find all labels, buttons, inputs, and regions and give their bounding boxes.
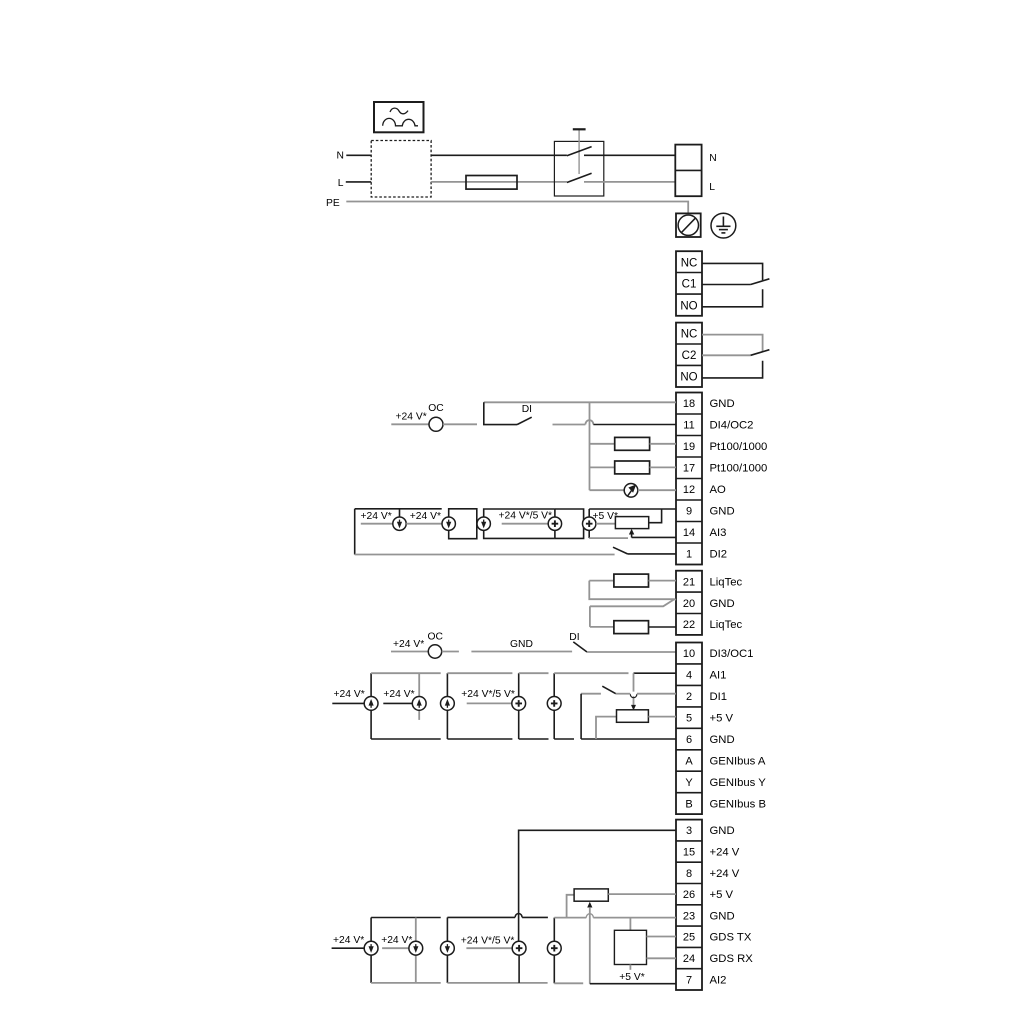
svg-text:+24 V*/5 V*: +24 V*/5 V* bbox=[499, 511, 553, 522]
svg-text:AO: AO bbox=[710, 484, 727, 496]
svg-text:+24 V*: +24 V* bbox=[333, 935, 364, 946]
svg-text:NO: NO bbox=[680, 372, 697, 384]
svg-text:Pt100/1000: Pt100/1000 bbox=[710, 441, 768, 453]
svg-text:GND: GND bbox=[710, 910, 735, 922]
svg-text:+24 V*: +24 V* bbox=[361, 511, 392, 522]
svg-text:+24 V: +24 V bbox=[710, 847, 740, 859]
svg-text:DI2: DI2 bbox=[710, 549, 728, 561]
svg-text:14: 14 bbox=[683, 527, 695, 539]
svg-text:15: 15 bbox=[683, 847, 695, 859]
svg-text:Pt100/1000: Pt100/1000 bbox=[710, 463, 768, 475]
svg-text:8: 8 bbox=[686, 868, 692, 880]
svg-text:L: L bbox=[709, 182, 715, 193]
svg-text:+24 V*/5 V*: +24 V*/5 V* bbox=[461, 936, 515, 947]
svg-text:+24 V*: +24 V* bbox=[393, 639, 424, 650]
svg-text:DI1: DI1 bbox=[710, 691, 728, 703]
svg-text:+24 V*: +24 V* bbox=[381, 935, 412, 946]
svg-text:+5 V: +5 V bbox=[710, 713, 734, 725]
svg-text:NC: NC bbox=[681, 257, 698, 269]
svg-text:9: 9 bbox=[686, 506, 692, 518]
svg-text:+24 V*: +24 V* bbox=[396, 411, 427, 422]
svg-text:OC: OC bbox=[428, 631, 444, 642]
svg-text:GND: GND bbox=[710, 398, 735, 410]
svg-text:DI3/OC1: DI3/OC1 bbox=[710, 648, 754, 660]
svg-text:GND: GND bbox=[710, 506, 735, 518]
svg-text:Y: Y bbox=[685, 777, 693, 789]
svg-text:PE: PE bbox=[326, 198, 340, 209]
svg-text:2: 2 bbox=[686, 691, 692, 703]
svg-text:+24 V*: +24 V* bbox=[383, 689, 414, 700]
svg-text:AI3: AI3 bbox=[710, 527, 727, 539]
svg-text:21: 21 bbox=[683, 576, 695, 588]
svg-text:GENIbus B: GENIbus B bbox=[710, 798, 767, 810]
svg-text:10: 10 bbox=[683, 648, 695, 660]
svg-text:AI1: AI1 bbox=[710, 670, 727, 682]
svg-text:24: 24 bbox=[683, 953, 695, 965]
svg-text:GND: GND bbox=[710, 734, 735, 746]
svg-text:1: 1 bbox=[686, 549, 692, 561]
svg-text:26: 26 bbox=[683, 889, 695, 901]
svg-text:+24 V*: +24 V* bbox=[410, 511, 441, 522]
svg-text:OC: OC bbox=[428, 403, 444, 414]
svg-text:N: N bbox=[337, 151, 344, 162]
svg-text:DI: DI bbox=[522, 404, 532, 415]
svg-text:NC: NC bbox=[681, 328, 698, 340]
svg-text:GENIbus Y: GENIbus Y bbox=[710, 777, 767, 789]
svg-text:12: 12 bbox=[683, 484, 695, 496]
svg-text:19: 19 bbox=[683, 441, 695, 453]
svg-text:L: L bbox=[338, 178, 344, 189]
svg-text:N: N bbox=[709, 153, 716, 164]
svg-text:NO: NO bbox=[680, 300, 697, 312]
svg-text:DI: DI bbox=[569, 632, 579, 643]
svg-text:C2: C2 bbox=[682, 350, 697, 362]
svg-text:5: 5 bbox=[686, 713, 692, 725]
svg-text:C1: C1 bbox=[682, 279, 697, 291]
svg-text:22: 22 bbox=[683, 619, 695, 631]
svg-text:LiqTec: LiqTec bbox=[710, 576, 743, 588]
svg-text:GND: GND bbox=[710, 598, 735, 610]
svg-text:6: 6 bbox=[686, 734, 692, 746]
svg-text:+24 V*: +24 V* bbox=[334, 689, 365, 700]
svg-text:20: 20 bbox=[683, 598, 695, 610]
svg-text:7: 7 bbox=[686, 974, 692, 986]
svg-text:GDS TX: GDS TX bbox=[710, 932, 752, 944]
svg-text:+24 V*/5 V*: +24 V*/5 V* bbox=[461, 689, 515, 700]
svg-text:GDS RX: GDS RX bbox=[710, 953, 754, 965]
svg-text:GND: GND bbox=[710, 825, 735, 837]
svg-text:AI2: AI2 bbox=[710, 974, 727, 986]
svg-text:+5 V*: +5 V* bbox=[619, 972, 644, 983]
svg-text:3: 3 bbox=[686, 825, 692, 837]
svg-text:GENIbus A: GENIbus A bbox=[710, 756, 766, 768]
svg-text:+5 V*: +5 V* bbox=[593, 511, 618, 522]
svg-text:17: 17 bbox=[683, 463, 695, 475]
svg-text:18: 18 bbox=[683, 398, 695, 410]
svg-text:25: 25 bbox=[683, 932, 695, 944]
svg-text:4: 4 bbox=[686, 670, 692, 682]
svg-text:DI4/OC2: DI4/OC2 bbox=[710, 420, 754, 432]
svg-text:+24 V: +24 V bbox=[710, 868, 740, 880]
svg-text:GND: GND bbox=[510, 639, 533, 650]
svg-text:LiqTec: LiqTec bbox=[710, 619, 743, 631]
svg-text:11: 11 bbox=[683, 420, 694, 432]
svg-text:B: B bbox=[685, 798, 692, 810]
svg-text:A: A bbox=[685, 756, 693, 768]
svg-text:23: 23 bbox=[683, 910, 695, 922]
svg-text:+5 V: +5 V bbox=[710, 889, 734, 901]
